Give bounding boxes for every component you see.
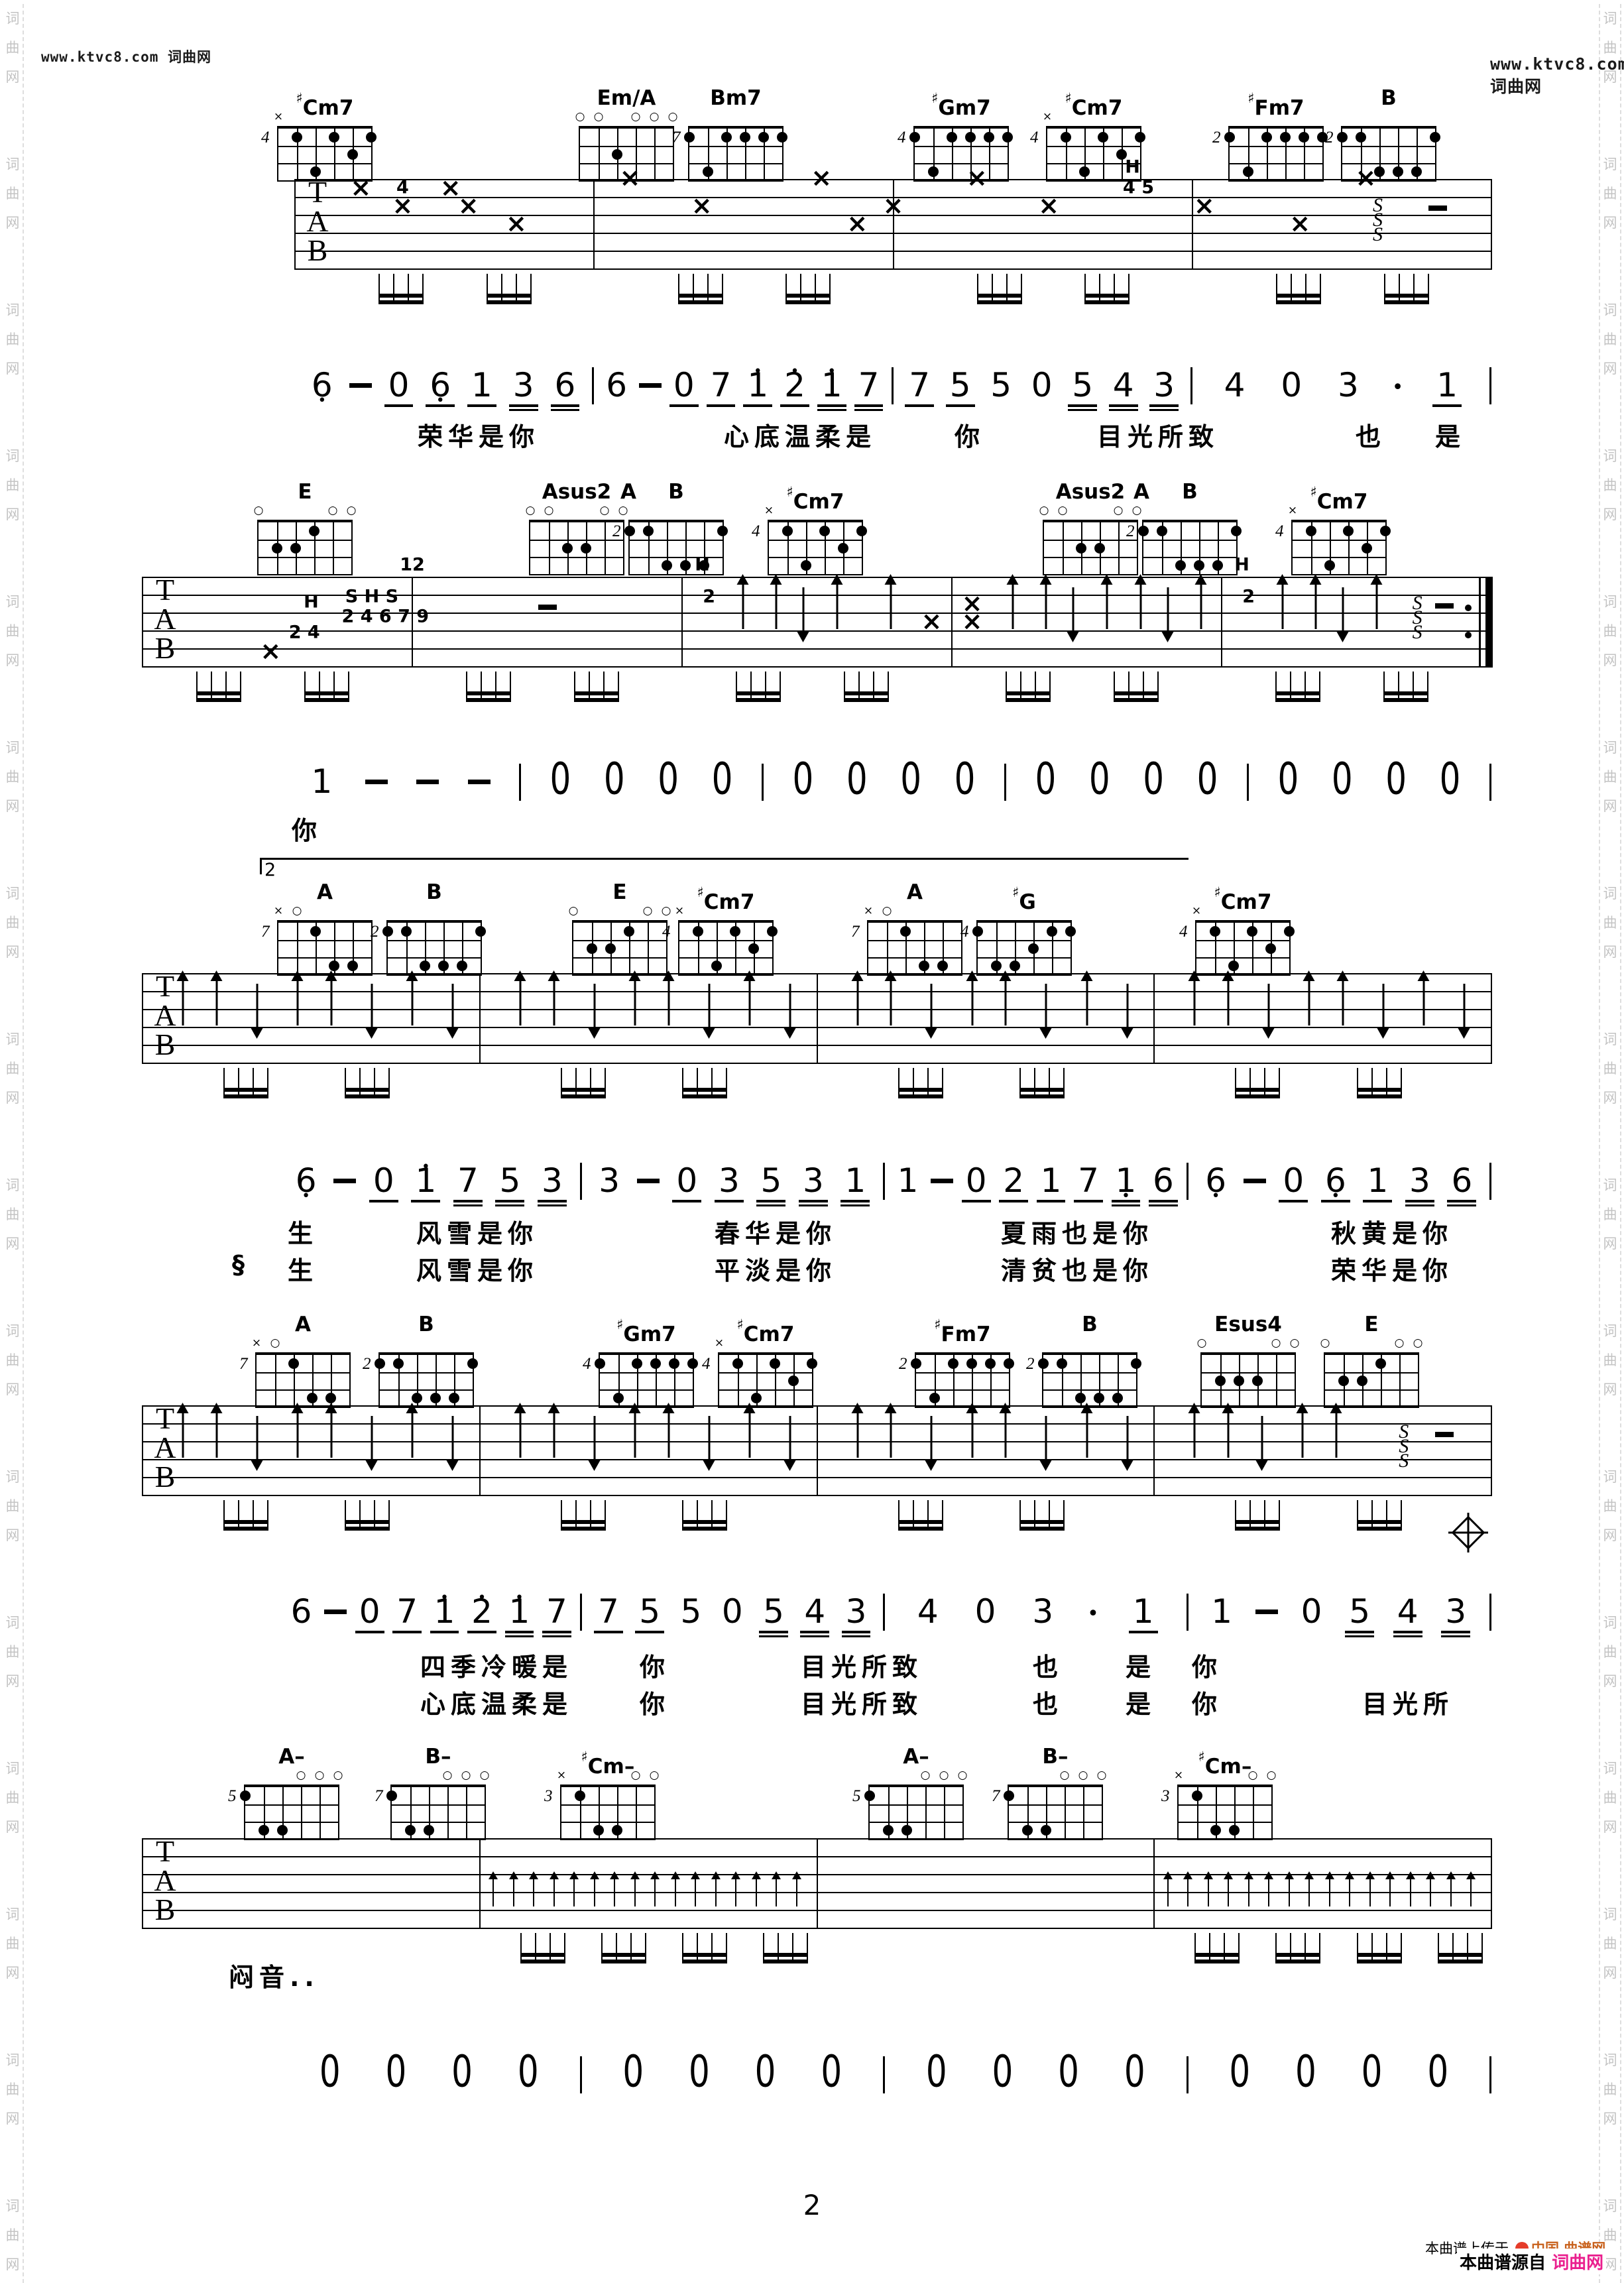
tab-event-ua <box>856 1406 858 1458</box>
jianpu-melody-line: 60613660712177550543403•1 <box>295 366 1491 410</box>
finger-dot <box>587 943 597 954</box>
tab-event-sua <box>776 1873 777 1906</box>
melody-note: 1 <box>1432 366 1462 407</box>
tab-event-txt: H <box>695 555 710 575</box>
tab-event-x: × <box>619 168 640 188</box>
chord-grid: 7×○ <box>867 920 962 976</box>
chord-diagram: ♯Cm74× <box>709 1311 822 1408</box>
finger-dot <box>624 526 635 536</box>
tab-event-x: × <box>811 168 832 188</box>
tab-event-ua <box>182 1406 184 1458</box>
tab-event-x: × <box>846 213 868 233</box>
open-mark: ○ <box>1248 1770 1258 1781</box>
finger-dot <box>1061 132 1071 143</box>
tab-event-da <box>1126 984 1128 1035</box>
chord-grid: 4× <box>718 1352 813 1408</box>
chord-diagram: A–5○○○ <box>235 1743 348 1840</box>
tab-event-ua <box>667 1406 669 1458</box>
tab-event-txt: H <box>1234 555 1249 575</box>
base-fret-label: 4 <box>583 1355 591 1374</box>
melody-note: 0 <box>618 2046 648 2097</box>
finger-dot <box>788 1376 799 1386</box>
chord-name: ♯Fm7 <box>1220 85 1332 111</box>
tab-event-da <box>1342 587 1344 639</box>
finger-dot <box>1057 1358 1067 1369</box>
mute-mark: × <box>1043 111 1052 123</box>
open-mark: ○ <box>600 505 610 516</box>
tab-event-x: × <box>921 611 943 631</box>
finger-dot <box>1338 1376 1349 1386</box>
tab-event-rest <box>538 605 557 610</box>
finger-dot <box>1306 526 1316 536</box>
melody-note: 3 <box>1441 1592 1470 1633</box>
fret-string-line <box>447 1787 449 1839</box>
footer-site2: 词曲网 <box>1552 2253 1603 2273</box>
tab-event-sua <box>1349 1873 1350 1906</box>
barline <box>1491 973 1492 1064</box>
tab-event-sua <box>735 1873 736 1906</box>
melody-note: 1 <box>467 366 496 407</box>
melody-measure: 10543 <box>1189 1592 1490 1633</box>
finger-dot <box>386 1790 397 1801</box>
fret-line <box>259 557 351 558</box>
chord-grid: 4× <box>678 920 774 976</box>
melody-dash <box>416 780 439 784</box>
melody-note: 7 <box>453 1161 483 1202</box>
tab-event-txt: 2 <box>1242 587 1255 607</box>
jianpu-melody-line: 0000000000000000 <box>278 2055 1491 2093</box>
fret-line <box>278 163 371 164</box>
mute-mark: × <box>252 1338 261 1349</box>
tab-event-ua <box>215 1406 217 1458</box>
base-fret-label: 4 <box>261 129 270 147</box>
fret-line <box>1230 163 1322 164</box>
melody-note: 5 <box>635 1592 664 1633</box>
tab-event-ua <box>1302 1406 1304 1458</box>
barline <box>1491 179 1492 270</box>
chord-grid: 2 <box>1142 520 1238 575</box>
finger-dot <box>680 560 691 571</box>
open-mark: ○ <box>328 505 338 516</box>
tab-event-sua <box>1167 1873 1169 1906</box>
chord-diagram: ♯Cm74× <box>669 879 782 976</box>
tab-event-ua <box>1335 1406 1337 1458</box>
finger-dot <box>985 1358 996 1369</box>
finger-dot <box>1324 560 1335 571</box>
finger-dot <box>770 1358 780 1369</box>
open-mark: ○ <box>921 1770 931 1781</box>
melody-note: 0 <box>817 2046 846 2097</box>
tab-event-ua <box>330 1406 332 1458</box>
base-fret-label: 5 <box>228 1787 237 1806</box>
mute-mark: × <box>274 111 283 123</box>
tab-event-da <box>708 984 710 1035</box>
tab-letters: T A B <box>152 1404 178 1492</box>
melody-note: 1 <box>1037 1161 1066 1202</box>
chord-diagram: B2 <box>1033 1311 1146 1408</box>
open-mark: ○ <box>631 1770 641 1781</box>
chord-diagram: ♯Cm74× <box>759 479 872 575</box>
fret-string-line <box>319 1787 321 1839</box>
open-mark: ○ <box>315 1770 325 1781</box>
finger-dot <box>449 1393 459 1403</box>
melody-measure: 606136 <box>295 366 592 407</box>
fret-string-line <box>1276 1355 1277 1407</box>
tab-event-da <box>1045 984 1047 1035</box>
finger-dot <box>966 1358 977 1369</box>
tab-event-wavy: S S S <box>1410 596 1424 640</box>
base-fret-label: 4 <box>1179 923 1188 941</box>
tab-event-x: × <box>506 213 527 233</box>
tab-event-ua <box>890 1406 892 1458</box>
chord-name: ♯Cm7 <box>1283 479 1395 505</box>
chord-diagram: E○○○ <box>563 879 676 976</box>
melody-note: 5 <box>756 1161 785 1202</box>
finger-dot <box>684 132 695 143</box>
lyric-text: 是 <box>1126 1647 1156 1683</box>
fret-line <box>1325 1372 1418 1374</box>
chord-grid: 7○○○ <box>1008 1785 1103 1840</box>
base-fret-label: 7 <box>851 923 860 941</box>
melody-dash <box>639 383 662 388</box>
finger-dot <box>947 132 957 143</box>
tab-staff: T A B <box>143 1838 1491 1929</box>
mute-mark: × <box>1174 1770 1183 1781</box>
chord-diagram: ♯Fm72 <box>906 1311 1019 1408</box>
chord-diagram: ♯Cm74× <box>268 85 381 182</box>
base-fret-label: 3 <box>1161 1787 1170 1806</box>
melody-measure: 0000 <box>1189 2055 1490 2093</box>
mute-mark: × <box>1192 906 1201 917</box>
finger-dot <box>1215 1376 1226 1386</box>
fret-line <box>388 940 481 941</box>
finger-dot <box>624 926 634 937</box>
tab-event-ua <box>1423 974 1425 1025</box>
melody-note: 3 <box>799 1161 828 1202</box>
tab-event-da <box>1045 1416 1047 1468</box>
lyric-text: 目光所致 <box>801 1684 923 1720</box>
tab-event-da <box>1073 587 1074 639</box>
fret-line <box>679 940 772 941</box>
tab-event-ua <box>297 1406 299 1458</box>
fret-line <box>769 557 862 558</box>
melody-barline <box>1489 1594 1491 1631</box>
chord-name: A <box>247 1311 359 1338</box>
melody-note: 0 <box>672 1161 701 1202</box>
chord-grid: 3×○○ <box>560 1785 656 1840</box>
tab-event-da <box>789 984 791 1035</box>
chord-grid: ○○○ <box>572 920 667 976</box>
open-mark: ○ <box>1114 505 1124 516</box>
finger-dot <box>467 1358 478 1369</box>
fret-line <box>278 146 371 147</box>
finger-dot <box>748 943 759 954</box>
melody-note: 6 <box>1321 1161 1350 1202</box>
lyric-text: 风雪是你 <box>416 1213 538 1250</box>
lyric-text: 平淡是你 <box>715 1250 837 1287</box>
tab-event-da <box>803 587 805 639</box>
chord-name: B <box>620 479 732 505</box>
base-fret-label: 2 <box>1026 1355 1035 1374</box>
fret-string-line <box>275 1355 276 1407</box>
rhythm-beam <box>844 672 892 701</box>
tab-event-ua <box>1194 974 1196 1025</box>
fret-line <box>769 540 862 541</box>
rhythm-beam <box>1383 672 1431 701</box>
melody-dash <box>333 1179 356 1183</box>
tab-event-ua <box>1005 974 1007 1025</box>
finger-dot <box>1192 1790 1202 1801</box>
fret-string-line <box>1118 522 1120 574</box>
melody-dash <box>637 1179 660 1183</box>
melody-note: 5 <box>495 1161 524 1202</box>
melody-note: 0 <box>1193 754 1222 805</box>
finger-dot <box>277 1825 288 1836</box>
chord-diagram: B–7○○○ <box>382 1743 494 1840</box>
rhythm-beam <box>196 672 244 701</box>
melody-note: 0 <box>951 754 980 805</box>
melody-note: 0 <box>1274 754 1303 805</box>
rhythm-beam <box>1357 1500 1405 1529</box>
mute-mark: × <box>715 1338 724 1349</box>
tab-event-da <box>1261 1416 1263 1468</box>
fret-string-line <box>654 129 656 180</box>
tab-event-x: × <box>883 196 904 215</box>
jianpu-melody-line: 6017533035311021716606136 <box>278 1161 1491 1202</box>
finger-dot <box>730 926 740 937</box>
fret-string-line <box>605 522 606 574</box>
chord-diagram: ♯Gm74 <box>590 1311 703 1408</box>
melody-note: 3 <box>1405 1161 1434 1202</box>
melody-note: 0 <box>922 2046 951 2097</box>
melody-note: 1 <box>430 1592 459 1633</box>
fret-string-line <box>944 1787 945 1839</box>
chord-grid: 5○○○ <box>868 1785 964 1840</box>
base-fret-label: 7 <box>239 1355 248 1374</box>
tab-event-da <box>931 1416 933 1468</box>
tab-event-x: × <box>1038 196 1059 215</box>
chord-name: ♯G <box>968 879 1080 906</box>
open-mark: ○ <box>643 906 653 917</box>
barline <box>479 1838 481 1929</box>
tab-event-x: × <box>1356 168 1377 188</box>
melody-note: 0 <box>1297 1592 1326 1631</box>
tab-event-da <box>1268 984 1270 1035</box>
melody-note: 3 <box>538 1161 567 1202</box>
melody-note: 7 <box>707 366 736 407</box>
chord-name: ♯Cm7 <box>1037 85 1150 111</box>
rhythm-beam <box>574 672 622 701</box>
melody-note: 5 <box>759 1592 788 1633</box>
base-fret-label: 4 <box>1030 129 1039 147</box>
finger-dot <box>1028 943 1039 954</box>
tab-event-sua <box>553 1873 555 1906</box>
melody-note: 6 <box>308 366 337 404</box>
open-mark: ○ <box>480 1770 490 1781</box>
melody-note: 7 <box>905 366 934 407</box>
tab-event-sua <box>654 1873 656 1906</box>
melody-note: 0 <box>384 366 414 407</box>
finger-dot <box>937 961 948 971</box>
finger-dot <box>693 926 703 937</box>
tab-event-ua <box>971 1406 973 1458</box>
fret-line <box>1044 557 1137 558</box>
tab-event-sua <box>1289 1873 1290 1906</box>
melody-note: 6 <box>1149 1161 1178 1202</box>
finger-dot <box>643 526 654 536</box>
tab-event-sua <box>493 1873 494 1906</box>
rhythm-beam <box>682 1068 730 1097</box>
base-fret-label: 4 <box>752 522 760 541</box>
melody-note: 1 <box>894 1161 923 1200</box>
melody-dash <box>1255 1610 1278 1614</box>
tab-event-ua <box>1045 577 1047 629</box>
chord-diagram: B2 <box>1332 85 1445 182</box>
chord-diagram: E○○○ <box>249 479 361 575</box>
finger-dot <box>1243 166 1253 177</box>
finger-dot <box>1411 166 1422 177</box>
rhythm-beam <box>1194 1933 1242 1962</box>
melody-measure: 606136 <box>1189 1161 1490 1202</box>
tab-event-sua <box>1268 1873 1269 1906</box>
finger-dot <box>347 961 358 971</box>
tab-event-da <box>256 984 258 1035</box>
open-mark: ○ <box>526 505 536 516</box>
fret-string-line <box>466 1787 467 1839</box>
jianpu-melody-line: 60712177550543403•110543 <box>278 1592 1491 1636</box>
fret-string-line <box>636 1787 637 1839</box>
melody-note: 7 <box>594 1592 623 1633</box>
melody-note: 0 <box>1279 1161 1308 1202</box>
barline <box>294 179 296 270</box>
finger-dot <box>1047 926 1057 937</box>
tab-letters: T A B <box>152 575 178 663</box>
rhythm-beam <box>763 1933 811 1962</box>
melody-barline <box>1489 1163 1491 1200</box>
rhythm-beam <box>378 274 426 303</box>
tab-event-wavy: S S S <box>1371 198 1385 242</box>
tab-event-sua <box>573 1873 575 1906</box>
chord-diagram: ♯Cm–3×○○ <box>1169 1743 1281 1840</box>
chord-name: ♯Gm7 <box>590 1311 703 1338</box>
chord-name: A– <box>235 1743 348 1770</box>
tab-event-ua <box>182 974 184 1025</box>
melody-note: 0 <box>708 754 737 805</box>
melody-note: 0 <box>1328 754 1357 805</box>
chord-name: A– <box>860 1743 972 1770</box>
lyric-text: 你 <box>955 416 985 453</box>
lyric-text: § <box>232 1250 250 1279</box>
melody-note: 5 <box>986 366 1015 404</box>
chord-grid: ○○○○ <box>529 520 624 575</box>
finger-dot <box>929 1393 940 1403</box>
melody-measure: 0000 <box>1249 762 1489 801</box>
melody-note: 3 <box>1334 366 1363 404</box>
barline <box>1221 577 1222 668</box>
finger-dot <box>382 926 393 937</box>
finger-dot <box>1038 1358 1049 1369</box>
finger-dot <box>240 1790 251 1801</box>
chord-diagram: Bm77 <box>679 85 792 182</box>
melody-note: 0 <box>1277 366 1306 404</box>
chord-diagram: B2 <box>620 479 732 575</box>
fret-line <box>580 146 673 147</box>
tab-event-ua <box>667 974 669 1025</box>
fret-line <box>573 940 666 941</box>
chord-grid: 5○○○ <box>244 1785 339 1840</box>
open-mark: ○ <box>544 505 554 516</box>
chord-diagram: E○○○ <box>1315 1311 1428 1408</box>
tab-event-ua <box>1012 577 1014 629</box>
melody-note: 0 <box>718 1592 747 1631</box>
finger-dot <box>438 961 449 971</box>
fret-line <box>245 1822 338 1823</box>
lyric-text: 也 <box>1033 1647 1063 1683</box>
melody-note: • <box>1391 366 1405 410</box>
finger-dot <box>366 132 377 143</box>
finger-dot <box>801 560 811 571</box>
chord-grid: 4× <box>1291 520 1387 575</box>
open-mark: ○ <box>1395 1338 1405 1349</box>
lyric-text: 目光所致 <box>1097 416 1219 453</box>
finger-dot <box>650 1358 661 1369</box>
tab-event-ua <box>1005 1406 1007 1458</box>
finger-dot <box>424 1825 434 1836</box>
melody-measure: 1021716 <box>885 1161 1187 1202</box>
fret-line <box>1230 146 1322 147</box>
fret-line <box>392 1804 485 1806</box>
tab-event-sua <box>695 1873 696 1906</box>
rhythm-beam <box>1114 672 1161 701</box>
finger-dot <box>1252 1376 1263 1386</box>
mute-mark: × <box>764 505 774 516</box>
chord-grid: 2 <box>1228 126 1324 182</box>
lyric-text: 你 <box>1192 1647 1222 1683</box>
finger-dot <box>1212 560 1223 571</box>
finger-dot <box>1098 132 1108 143</box>
rhythm-beam <box>1357 1068 1405 1097</box>
fret-line <box>1196 957 1289 959</box>
lyric-text: 闷音.. <box>229 1957 319 1993</box>
open-mark: ○ <box>1058 505 1068 516</box>
finger-dot <box>972 926 983 937</box>
lyric-text: 秋黄是你 <box>1331 1213 1453 1250</box>
finger-dot <box>1138 526 1149 536</box>
fret-line <box>600 1389 693 1391</box>
chord-diagram: B2 <box>378 879 491 976</box>
finger-dot <box>807 1358 817 1369</box>
finger-dot <box>687 1358 698 1369</box>
tab-event-sua <box>715 1873 717 1906</box>
base-fret-label: 7 <box>375 1787 383 1806</box>
tab-event-x: × <box>458 196 479 215</box>
lyric-text: 生 <box>288 1213 318 1250</box>
finger-dot <box>430 1393 441 1403</box>
fret-line <box>1342 146 1435 147</box>
finger-dot <box>662 560 672 571</box>
melody-note: 5 <box>677 1592 706 1631</box>
rhythm-beam <box>487 274 534 303</box>
fret-line <box>245 1804 338 1806</box>
open-mark: ○ <box>443 1770 453 1781</box>
barline <box>479 1405 481 1496</box>
tab-staff: T A BS S S <box>143 1405 1491 1496</box>
tab-staff: T A B×4×××××××××××H4 5×××S S S <box>295 179 1491 270</box>
rhythm-beam <box>1276 274 1324 303</box>
open-mark: ○ <box>1320 1338 1330 1349</box>
open-mark: ○ <box>650 111 660 123</box>
lyric-text: 你 <box>640 1684 670 1720</box>
